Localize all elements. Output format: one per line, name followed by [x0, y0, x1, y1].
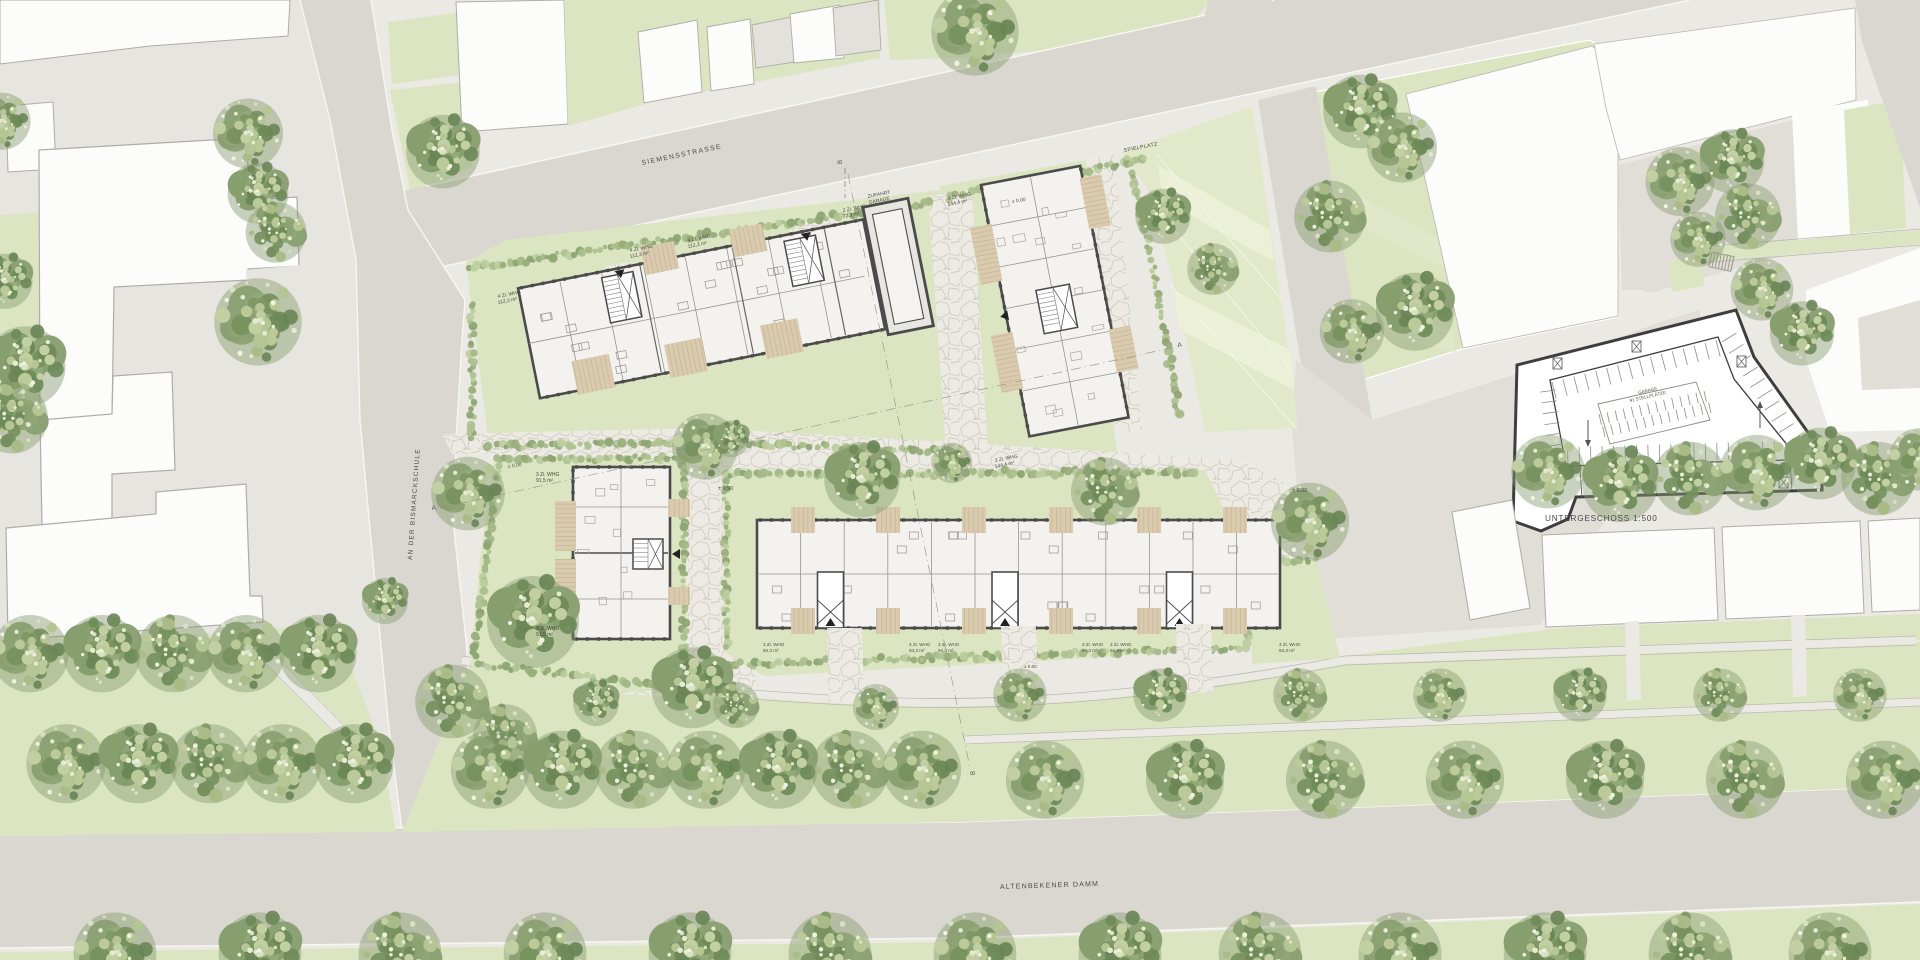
svg-text:± 0.90: ± 0.90 [718, 486, 733, 492]
svg-text:± 0.00: ± 0.00 [1292, 488, 1307, 494]
svg-text:91,5 m²: 91,5 m² [536, 478, 553, 484]
svg-text:3 Zi. WHG: 3 Zi. WHG [763, 642, 785, 647]
svg-text:3 Zi. WHG: 3 Zi. WHG [1110, 642, 1132, 647]
svg-text:± 0.00: ± 0.00 [1024, 664, 1037, 669]
svg-text:3 Zi. WHG: 3 Zi. WHG [909, 642, 931, 647]
svg-text:94,3 m²: 94,3 m² [938, 648, 954, 653]
svg-text:94,3 m²: 94,3 m² [1110, 648, 1126, 653]
svg-text:94,3 m²: 94,3 m² [1082, 648, 1098, 653]
svg-text:UNTERGESCHOSS 1:500: UNTERGESCHOSS 1:500 [1545, 514, 1658, 523]
svg-text:94,3 m²: 94,3 m² [763, 648, 779, 653]
svg-text:91,5 m²: 91,5 m² [536, 632, 553, 638]
svg-text:3 Zi. WHG: 3 Zi. WHG [1279, 642, 1301, 647]
svg-text:3 Zi. WHG: 3 Zi. WHG [1082, 642, 1104, 647]
svg-text:B: B [838, 160, 844, 164]
svg-text:94,3 m²: 94,3 m² [909, 648, 925, 653]
svg-text:3 Zi. WHG: 3 Zi. WHG [938, 642, 960, 647]
svg-text:94,3 m²: 94,3 m² [1279, 648, 1295, 653]
svg-text:B: B [971, 771, 977, 775]
